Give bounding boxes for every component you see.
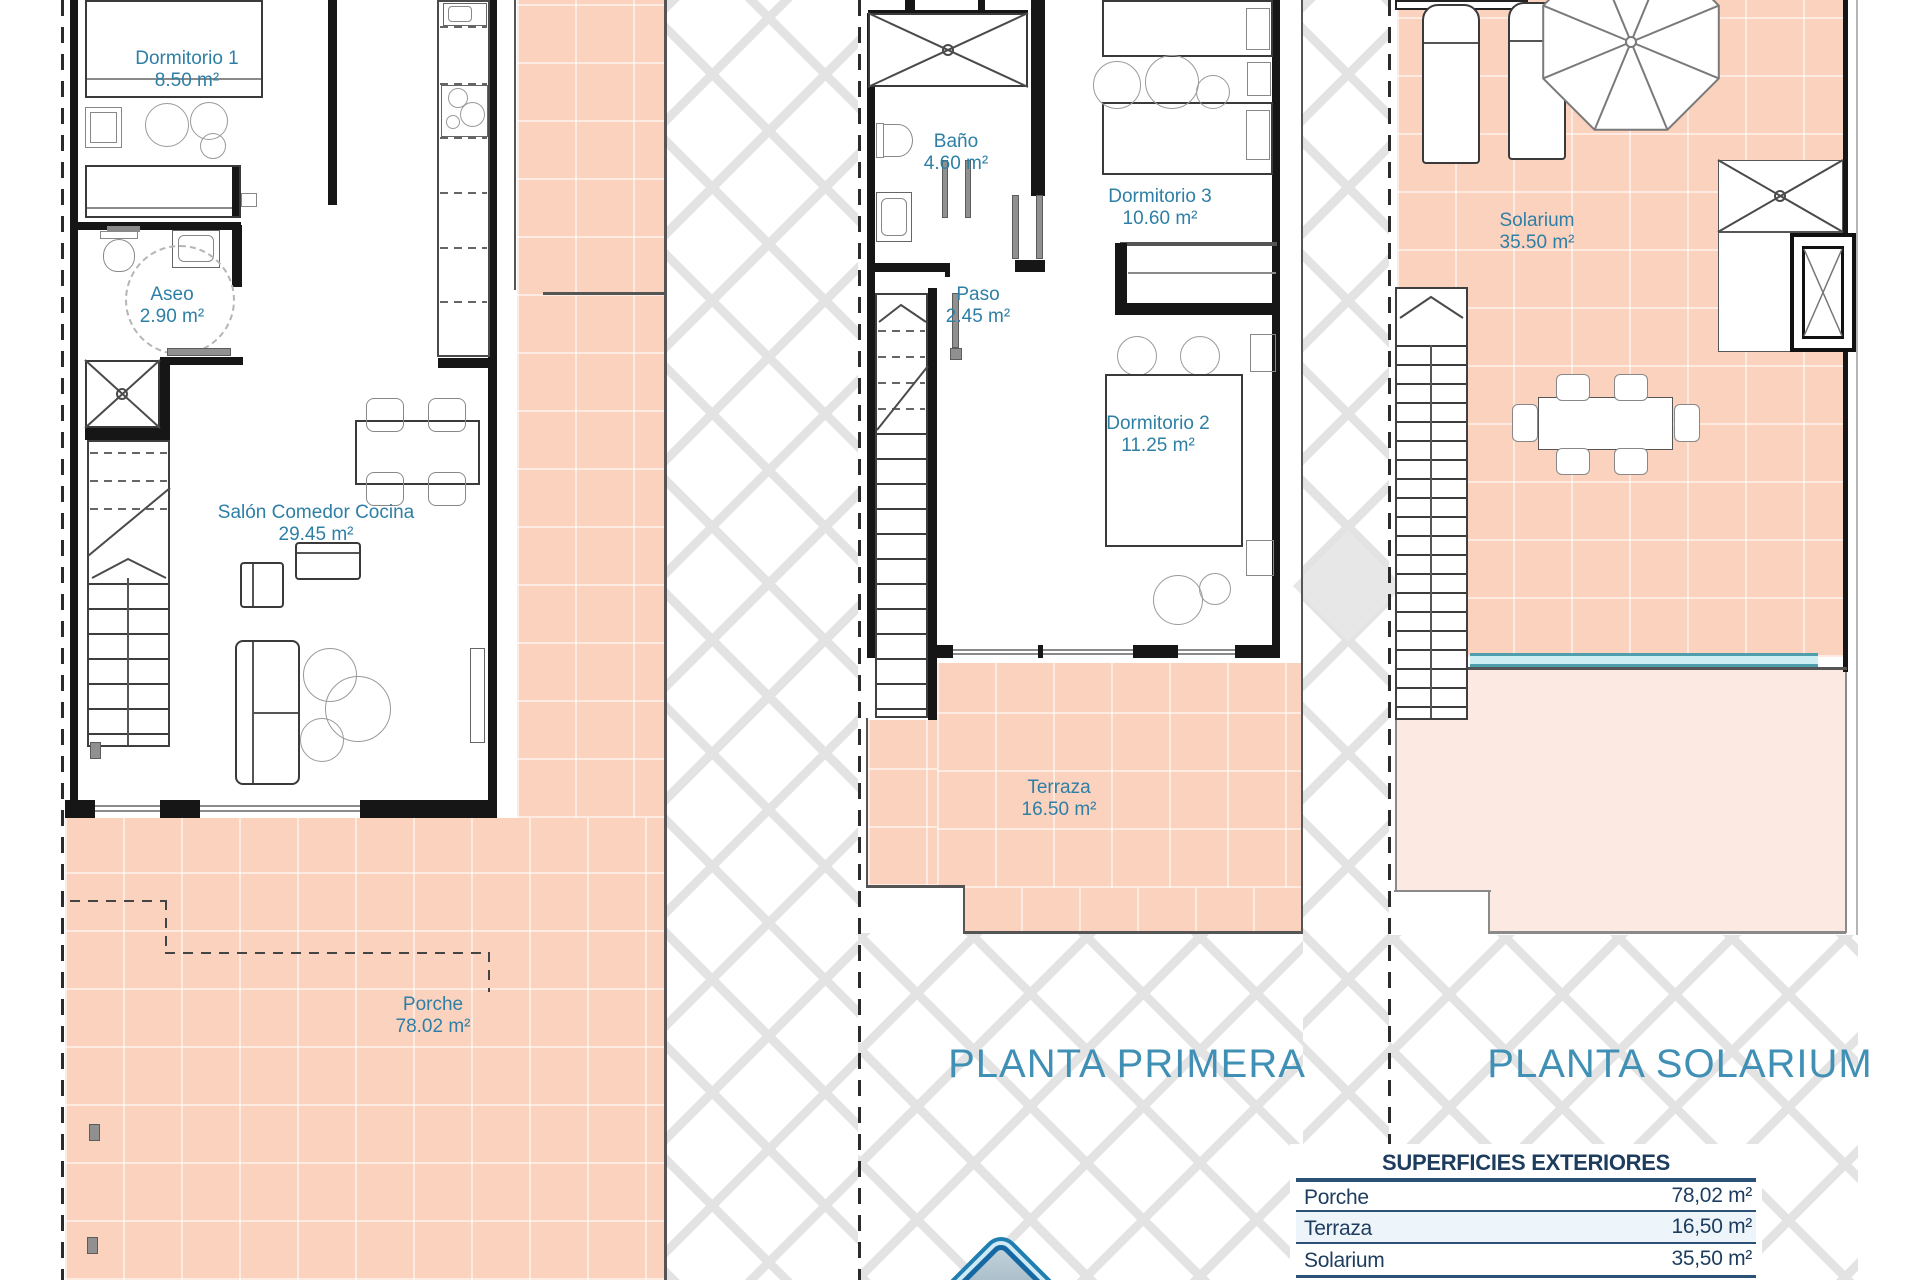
sliding-door-bar: [1036, 195, 1043, 259]
plant-icon: [1093, 61, 1141, 109]
outdoor-chair: [1614, 448, 1648, 475]
bano-label: Baño 4.60 m²: [924, 131, 988, 175]
window-glass-line: [1178, 653, 1235, 655]
table-line: [1296, 1178, 1756, 1182]
porche-floor: [65, 818, 664, 1280]
door-sill-line: [95, 805, 160, 807]
outdoor-chair: [1614, 374, 1648, 401]
ground-south-window-opening: [200, 800, 360, 818]
armchair: [295, 542, 361, 580]
solarium-area: 35.50 m²: [1500, 232, 1575, 254]
sofa-cushion-line: [254, 712, 298, 714]
solarium-name: Solarium: [1500, 210, 1575, 232]
stair-treads: [877, 433, 926, 715]
window-opening: [953, 645, 1038, 658]
porche-dashed-edge: [165, 952, 488, 954]
paso-area: 2.45 m²: [946, 306, 1010, 328]
shaft-inner-box: [1802, 246, 1844, 339]
roof-border: [1488, 931, 1846, 934]
table-row-label: Solarium: [1304, 1249, 1384, 1273]
stair-side-wall: [928, 288, 937, 720]
plot-line-first: [858, 0, 861, 1280]
door-stop: [950, 348, 962, 360]
closet-shelf-line: [87, 207, 232, 209]
stair-divider: [1430, 345, 1432, 718]
plant-icon: [1199, 573, 1231, 605]
plot-line-ground: [61, 0, 64, 1280]
roof-border: [1488, 892, 1490, 933]
table-line: [1296, 1242, 1756, 1244]
stair-tread-dashed: [90, 480, 167, 482]
solarium-label: Solarium 35.50 m²: [1500, 210, 1575, 254]
dormitorio2-label: Dormitorio 2 11.25 m²: [1106, 413, 1209, 457]
armchair-line: [252, 564, 254, 606]
dorm3-bottom-line: [1120, 242, 1277, 246]
dining-chair: [428, 472, 466, 506]
table-row-value: 35,50 m²: [1540, 1247, 1752, 1271]
bed-pillow-round: [1117, 336, 1157, 376]
stair-tread-dashed: [878, 382, 925, 384]
nightstand: [1247, 62, 1271, 96]
top-wall-stub: [905, 0, 915, 13]
toilet-icon: [103, 239, 135, 272]
tv-unit: [470, 648, 485, 743]
paso-name: Paso: [946, 284, 1010, 306]
ground-patio-divider: [543, 292, 664, 295]
table-row-label: Terraza: [1304, 1217, 1372, 1241]
dormitorio1-area: 8.50 m²: [135, 70, 238, 92]
closet2-shelf-line: [1128, 272, 1276, 274]
counter-division: [440, 137, 487, 139]
kitchen-sink-basin: [448, 6, 472, 22]
aseo-top-wall: [70, 222, 241, 230]
bed-pillow-round: [1180, 336, 1220, 376]
plant-icon: [1153, 575, 1203, 625]
counter-division: [440, 26, 487, 28]
window-glass-line: [200, 805, 360, 807]
wardrobe-inner: [90, 112, 117, 143]
terraza-area: 16.50 m²: [1022, 799, 1097, 821]
porche-dashed-edge: [165, 900, 167, 952]
ground-west-wall: [70, 0, 78, 818]
porch-post: [90, 742, 101, 759]
dormitorio3-label: Dormitorio 3 10.60 m²: [1108, 186, 1211, 230]
hob-burner: [460, 102, 485, 127]
table-line: [1296, 1275, 1756, 1278]
dormitorio1-label: Dormitorio 1 8.50 m²: [135, 48, 238, 92]
armchair: [240, 562, 284, 608]
bano-area: 4.60 m²: [924, 153, 988, 175]
aseo-east-wall: [232, 225, 242, 287]
window-opening: [1178, 645, 1235, 658]
bano-bottom-wall: [868, 263, 945, 272]
lattice-below-first-plan: [858, 933, 1303, 1280]
bed-pillow: [1246, 8, 1270, 50]
porch-post: [87, 1237, 98, 1254]
plant-icon: [145, 103, 189, 147]
understair-storage-xbox: [85, 360, 160, 428]
ground-patio-strip: [517, 0, 664, 818]
window-glass-line: [200, 810, 360, 812]
window-glass-line: [953, 649, 1038, 651]
stair-tread-dashed: [878, 408, 925, 410]
stair-tread-dashed: [878, 330, 925, 332]
closet-door-jamb: [241, 193, 257, 207]
kitchen-counter: [437, 0, 490, 357]
terraza-label: Terraza 16.50 m²: [1022, 777, 1097, 821]
outdoor-table: [1538, 397, 1673, 450]
outdoor-chair: [1556, 448, 1590, 475]
dormitorio1-partition-wall: [328, 0, 337, 205]
stair-tread-dashed: [878, 356, 925, 358]
armario-xbox: [868, 13, 1028, 87]
lounger-line: [1510, 40, 1564, 42]
roof-xbox: [1718, 160, 1843, 232]
dorm2-bed: [1105, 374, 1243, 547]
table-line: [1296, 1210, 1756, 1212]
terraza-border: [963, 888, 965, 933]
toilet-tank-icon: [100, 231, 138, 239]
outdoor-chair: [1556, 374, 1590, 401]
dormitorio2-area: 11.25 m²: [1106, 435, 1209, 457]
terraza-floor: [937, 663, 1301, 888]
window-glass-line: [1178, 649, 1235, 651]
nightstand: [1246, 540, 1274, 576]
armchair-line: [297, 552, 359, 554]
roof-border: [1845, 672, 1847, 933]
counter-division: [440, 301, 487, 303]
sun-lounger: [1422, 4, 1480, 164]
dining-chair: [366, 472, 404, 506]
dining-chair: [366, 398, 404, 432]
window-glass-line: [1043, 649, 1133, 651]
aseo-area: 2.90 m²: [140, 306, 204, 328]
kitchen-end-wall: [438, 358, 493, 368]
table-row-label: Porche: [1304, 1186, 1369, 1210]
storage-bottom-wall: [85, 428, 170, 440]
porche-name: Porche: [396, 994, 471, 1016]
solarium-lower-roof-step: [1490, 892, 1846, 933]
first-plan-right-boundary: [1301, 0, 1303, 933]
plant-icon: [300, 718, 344, 762]
sliding-door-bar: [1012, 195, 1019, 259]
glass-balustrade: [1470, 653, 1818, 667]
stair-divider: [127, 578, 129, 745]
terraza-border: [866, 885, 965, 888]
stair-tread-dashed: [90, 452, 167, 454]
plant-icon: [1145, 55, 1199, 109]
porche-label: Porche 78.02 m²: [396, 994, 471, 1038]
ground-plot-right-line: [664, 0, 667, 1280]
top-wall-stub: [978, 0, 985, 13]
dormitorio1-name: Dormitorio 1: [135, 48, 238, 70]
porche-dashed-edge: [70, 900, 165, 902]
dorm3-corner-wall: [1015, 260, 1045, 272]
door-sill-line: [95, 810, 160, 812]
first-west-wall: [867, 13, 875, 658]
counter-division: [440, 192, 487, 194]
ground-south-door-opening: [95, 800, 160, 818]
window-glass-line: [953, 653, 1038, 655]
solarium-outer-line: [1856, 0, 1858, 935]
roof-border: [1394, 890, 1491, 892]
terraza-border: [866, 718, 868, 888]
floorplan-page: Dormitorio 1 8.50 m² Aseo 2.90 m² Salón …: [0, 0, 1920, 1280]
terraza-name: Terraza: [1022, 777, 1097, 799]
dormitorio3-area: 10.60 m²: [1108, 208, 1211, 230]
plant-icon: [200, 133, 226, 159]
bed-pillow: [1246, 110, 1270, 160]
terraza-border: [963, 931, 1303, 934]
porch-post: [89, 1124, 100, 1141]
hall-closet: [85, 165, 241, 218]
lattice-strip-left: [667, 0, 858, 1280]
table-row-value: 78,02 m²: [1540, 1184, 1752, 1208]
ground-patio-fence-line: [514, 0, 516, 290]
lounger-line: [1424, 42, 1478, 44]
bano-name: Baño: [924, 131, 988, 153]
bano-east-wall: [1031, 0, 1045, 196]
salon-area: 29.45 m²: [218, 524, 414, 546]
sun-lounger: [1508, 2, 1566, 160]
nightstand: [1250, 334, 1276, 372]
porche-area: 78.02 m²: [396, 1016, 471, 1038]
aseo-bottom-wall: [160, 357, 243, 365]
sink-basin-icon: [881, 198, 907, 236]
planta-solarium-title: PLANTA SOLARIUM: [1487, 1042, 1872, 1087]
table-row-value: 16,50 m²: [1540, 1215, 1752, 1239]
porche-dashed-edge: [488, 952, 490, 992]
counter-division: [440, 247, 487, 249]
outdoor-chair: [1674, 404, 1700, 442]
dining-chair: [428, 398, 466, 432]
hob-burner: [446, 115, 460, 129]
bano-door-jamb: [945, 263, 950, 277]
aseo-name: Aseo: [140, 284, 204, 306]
toilet-icon: [883, 124, 913, 157]
plot-line-solarium: [1388, 0, 1391, 1280]
terraza-floor-side: [868, 720, 937, 886]
planta-primera-title: PLANTA PRIMERA: [948, 1042, 1306, 1087]
paso-label: Paso 2.45 m²: [946, 284, 1010, 328]
dormitorio3-name: Dormitorio 3: [1108, 186, 1211, 208]
dorm2-top-wall: [1123, 303, 1277, 315]
aseo-label: Aseo 2.90 m²: [140, 284, 204, 328]
shower-sill: [167, 348, 231, 356]
dormitorio2-name: Dormitorio 2: [1106, 413, 1209, 435]
surfaces-table-title: SUPERFICIES EXTERIORES: [1296, 1150, 1756, 1176]
outdoor-chair: [1512, 404, 1538, 442]
terraza-floor-step: [963, 888, 1301, 933]
salon-label: Salón Comedor Cocina 29.45 m²: [218, 502, 414, 546]
window-glass-line: [1043, 653, 1133, 655]
salon-name: Salón Comedor Cocina: [218, 502, 414, 524]
stair-tread-dashed: [90, 508, 167, 510]
window-opening: [1043, 645, 1133, 658]
plant-icon: [1196, 75, 1230, 109]
